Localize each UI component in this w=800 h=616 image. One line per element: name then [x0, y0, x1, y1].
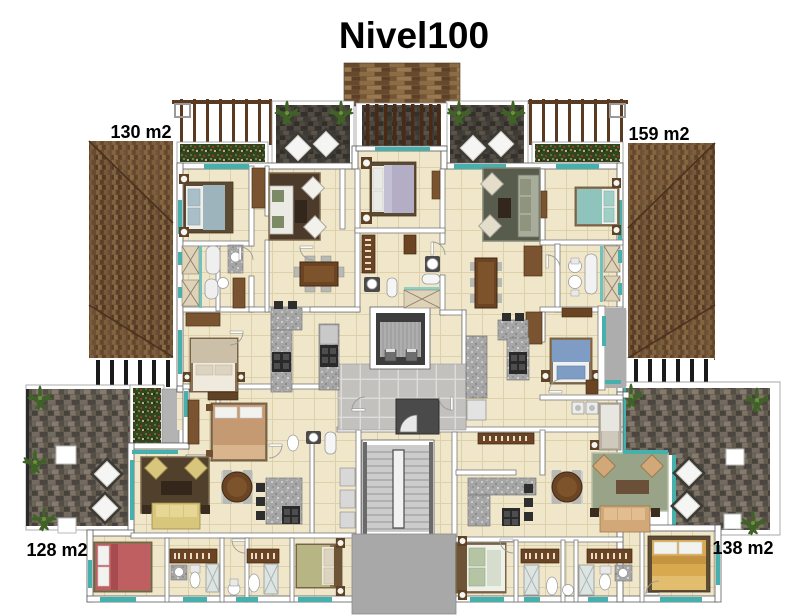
svg-text:138 m2: 138 m2: [712, 538, 773, 558]
svg-text:Nivel100: Nivel100: [339, 15, 489, 56]
svg-text:130 m2: 130 m2: [110, 122, 171, 142]
svg-text:159 m2: 159 m2: [628, 124, 689, 144]
svg-text:128 m2: 128 m2: [26, 540, 87, 560]
